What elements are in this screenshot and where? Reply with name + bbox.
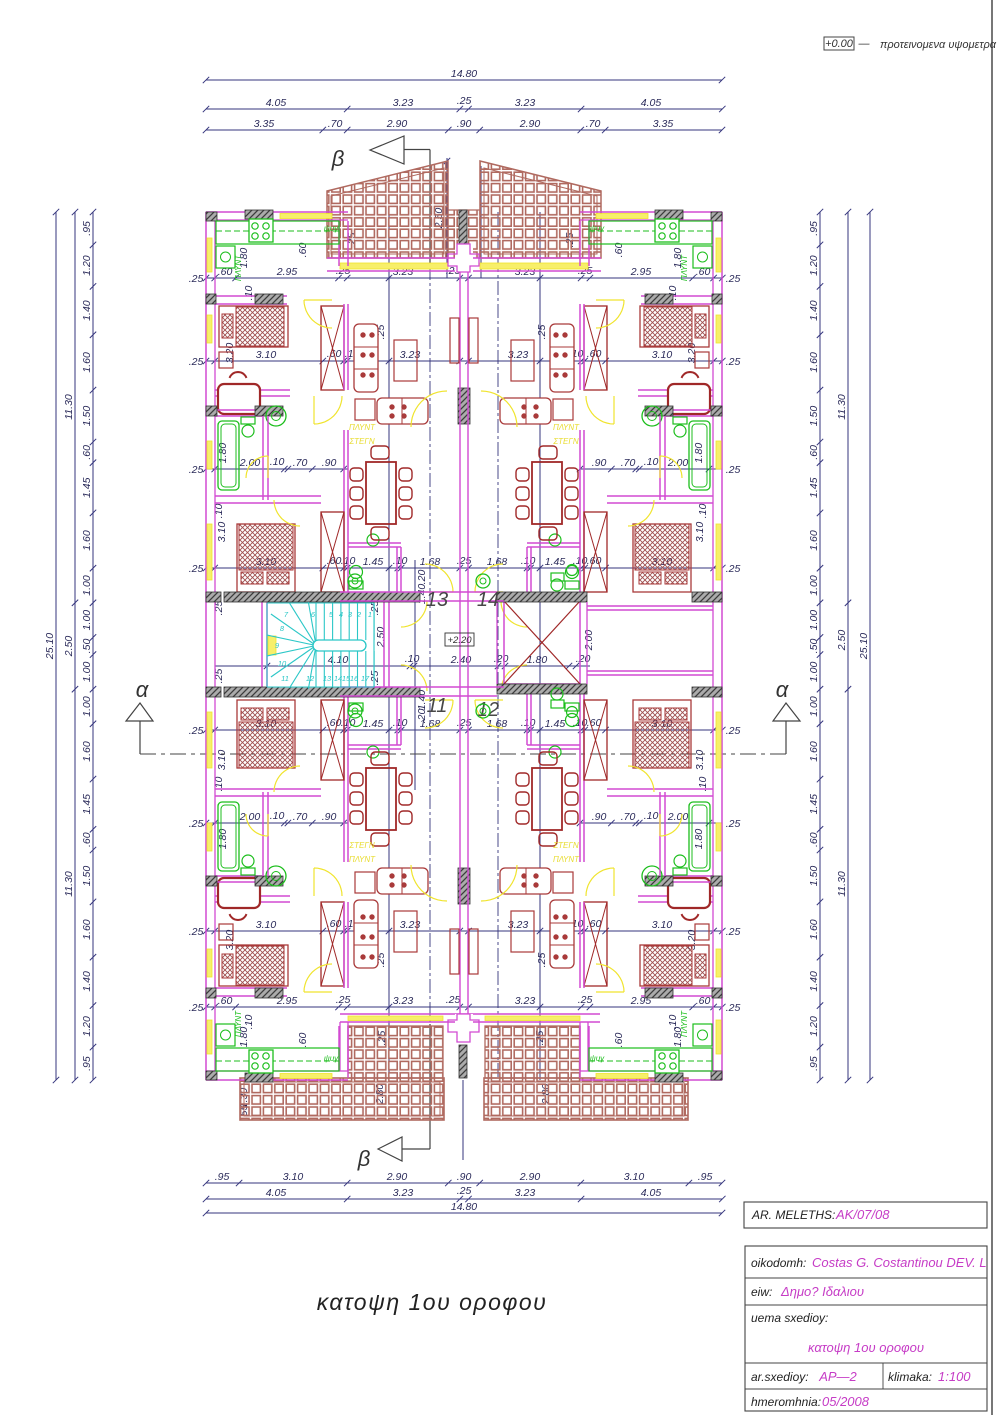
svg-text:2.95: 2.95 xyxy=(276,266,298,278)
svg-text:.60: .60 xyxy=(808,445,820,460)
svg-text:.95: .95 xyxy=(81,1056,93,1071)
svg-text:3.20: 3.20 xyxy=(224,343,236,364)
svg-text:3.23: 3.23 xyxy=(515,1187,536,1199)
svg-text:1.45: 1.45 xyxy=(545,556,566,568)
svg-text:Costas G. Costantinou DEV. L: Costas G. Costantinou DEV. L xyxy=(812,1255,987,1270)
svg-text:2.00: 2.00 xyxy=(239,811,261,823)
svg-text:.60: .60 xyxy=(613,243,625,258)
svg-text:.90: .90 xyxy=(592,457,607,469)
svg-text:1.40: 1.40 xyxy=(81,300,93,321)
svg-text:14: 14 xyxy=(477,589,499,611)
svg-text:ΣΤΕΓΝ: ΣΤΕΓΝ xyxy=(552,841,579,850)
svg-text:.10: .10 xyxy=(644,810,659,822)
svg-text:3.10: 3.10 xyxy=(256,349,277,361)
svg-text:4: 4 xyxy=(339,610,343,619)
svg-text:4.05: 4.05 xyxy=(266,97,287,109)
svg-text:.25: .25 xyxy=(336,994,351,1006)
svg-text:.10: .10 xyxy=(521,717,536,729)
svg-text:2: 2 xyxy=(356,610,362,619)
svg-text:1.60: 1.60 xyxy=(808,530,820,551)
svg-text:+0.00: +0.00 xyxy=(825,38,854,50)
svg-text:α: α xyxy=(776,677,790,702)
svg-text:3.10: 3.10 xyxy=(216,750,228,771)
svg-text:.10: .10 xyxy=(243,1015,255,1030)
svg-text:.60: .60 xyxy=(297,243,309,258)
svg-text:.25: .25 xyxy=(189,464,204,476)
svg-text:1.50: 1.50 xyxy=(808,866,820,887)
svg-text:.25: .25 xyxy=(189,356,204,368)
svg-text:1.00: 1.00 xyxy=(81,575,93,596)
svg-text:1.50: 1.50 xyxy=(81,866,93,887)
svg-text:1.45: 1.45 xyxy=(363,556,384,568)
svg-text:.25: .25 xyxy=(457,1185,472,1197)
svg-text:ΠΛΥΝΤ: ΠΛΥΝΤ xyxy=(553,855,580,864)
svg-text:25.10: 25.10 xyxy=(44,633,56,660)
svg-text:3.10: 3.10 xyxy=(652,919,673,931)
svg-text:11.30: 11.30 xyxy=(63,871,75,897)
svg-text:.25: .25 xyxy=(457,555,472,567)
svg-text:2.90: 2.90 xyxy=(386,118,408,130)
svg-text:1.50: 1.50 xyxy=(81,406,93,427)
svg-text:hmeromhnia:: hmeromhnia: xyxy=(751,1395,821,1409)
svg-text:2.50: 2.50 xyxy=(63,636,75,658)
svg-text:oikodomh:: oikodomh: xyxy=(751,1256,806,1270)
svg-text:11.30: 11.30 xyxy=(836,394,848,420)
svg-text:1.80: 1.80 xyxy=(217,443,229,464)
svg-text:.10: .10 xyxy=(644,456,659,468)
svg-text:.10: .10 xyxy=(393,555,408,567)
svg-text:ΠΛΥΝΤ: ΠΛΥΝΤ xyxy=(349,423,376,432)
svg-text:β: β xyxy=(331,146,345,171)
svg-text:Δημο? Ιδαλιου: Δημο? Ιδαλιου xyxy=(780,1284,864,1299)
svg-text:.25: .25 xyxy=(536,953,548,968)
svg-text:.25: .25 xyxy=(726,563,741,575)
svg-text:.90: .90 xyxy=(322,811,337,823)
svg-text:.60: .60 xyxy=(696,995,711,1007)
svg-text:.25: .25 xyxy=(189,1002,204,1014)
svg-text:2.50: 2.50 xyxy=(375,627,387,649)
svg-text:12: 12 xyxy=(306,674,315,683)
svg-text:1.20: 1.20 xyxy=(808,255,820,276)
svg-text:1.60: 1.60 xyxy=(81,741,93,762)
svg-text:eiw:: eiw: xyxy=(751,1285,772,1299)
svg-text:.95: .95 xyxy=(698,1171,713,1183)
svg-text:1.60: 1.60 xyxy=(808,919,820,940)
svg-text:1.00: 1.00 xyxy=(808,575,820,596)
svg-text:1.60: 1.60 xyxy=(808,741,820,762)
svg-text:1.80: 1.80 xyxy=(217,829,229,850)
svg-text:1.50: 1.50 xyxy=(808,406,820,427)
svg-text:3.23: 3.23 xyxy=(515,97,536,109)
svg-text:.70: .70 xyxy=(621,457,636,469)
svg-text:.25: .25 xyxy=(578,994,593,1006)
svg-text:.10: .10 xyxy=(667,1015,679,1030)
svg-text:.60: .60 xyxy=(613,1033,625,1048)
svg-text:klimaka:: klimaka: xyxy=(888,1370,932,1384)
svg-text:1.40: 1.40 xyxy=(81,971,93,992)
svg-text:προτεινομενα υψομετρα: προτεινομενα υψομετρα xyxy=(880,39,997,51)
svg-text:2.95: 2.95 xyxy=(630,266,652,278)
svg-text:4.10: 4.10 xyxy=(328,654,349,666)
svg-text:3.23: 3.23 xyxy=(515,995,536,1007)
svg-text:.90: .90 xyxy=(322,457,337,469)
svg-text:κατοψη 1ου οροφου: κατοψη 1ου οροφου xyxy=(808,1340,924,1355)
svg-text:ΠΛΥΝΤ: ΠΛΥΝΤ xyxy=(234,254,243,281)
svg-text:.25: .25 xyxy=(726,818,741,830)
svg-text:1.00: 1.00 xyxy=(81,610,93,631)
svg-text:β: β xyxy=(357,1146,371,1171)
svg-text:ψυγ: ψυγ xyxy=(324,224,339,233)
svg-text:3.23: 3.23 xyxy=(393,995,414,1007)
svg-text:.10: .10 xyxy=(393,717,408,729)
svg-text:.70: .70 xyxy=(293,811,308,823)
svg-text:κατοψη 1ου οροφου: κατοψη 1ου οροφου xyxy=(317,1289,548,1315)
svg-text:.70: .70 xyxy=(586,118,601,130)
svg-text:2.90: 2.90 xyxy=(519,1171,541,1183)
svg-text:1.60: 1.60 xyxy=(808,352,820,373)
svg-text:1.80: 1.80 xyxy=(693,829,705,850)
svg-text:1.20: 1.20 xyxy=(81,1016,93,1037)
svg-text:ΠΛΥΝΤ: ΠΛΥΝΤ xyxy=(553,423,580,432)
svg-text:—: — xyxy=(858,38,871,50)
svg-text:2.50: 2.50 xyxy=(836,630,848,652)
svg-text:.70: .70 xyxy=(293,457,308,469)
svg-text:3.10: 3.10 xyxy=(652,349,673,361)
svg-text:1.60: 1.60 xyxy=(81,352,93,373)
svg-text:.95: .95 xyxy=(808,221,820,236)
svg-text:.95: .95 xyxy=(808,1056,820,1071)
svg-text:2.00: 2.00 xyxy=(583,630,595,652)
svg-text:.90: .90 xyxy=(457,1171,472,1183)
svg-text:25.10: 25.10 xyxy=(858,633,870,660)
svg-text:.90: .90 xyxy=(457,118,472,130)
svg-text:.10: .10 xyxy=(405,653,420,665)
svg-text:2.00: 2.00 xyxy=(667,811,689,823)
svg-text:.25: .25 xyxy=(536,325,548,340)
svg-text:1.40: 1.40 xyxy=(808,300,820,321)
svg-text:.25: .25 xyxy=(726,1002,741,1014)
svg-text:ΠΛΥΝΤ: ΠΛΥΝΤ xyxy=(349,855,376,864)
svg-text:3.10: 3.10 xyxy=(694,522,706,543)
svg-text:.60: .60 xyxy=(218,995,233,1007)
svg-text:4.05: 4.05 xyxy=(641,1187,662,1199)
svg-text:4.05: 4.05 xyxy=(641,97,662,109)
svg-text:3.35: 3.35 xyxy=(254,118,275,130)
svg-text:14.80: 14.80 xyxy=(451,68,477,80)
svg-text:.70: .70 xyxy=(621,811,636,823)
svg-text:3.23: 3.23 xyxy=(393,97,414,109)
svg-text:05/2008: 05/2008 xyxy=(822,1394,870,1409)
svg-text:1.00: 1.00 xyxy=(81,696,93,717)
svg-text:AP—2: AP—2 xyxy=(818,1369,857,1384)
svg-text:11: 11 xyxy=(281,674,289,683)
svg-text:.95: .95 xyxy=(81,221,93,236)
svg-text:.10: .10 xyxy=(521,555,536,567)
svg-text:1.80: 1.80 xyxy=(693,443,705,464)
svg-text:.25: .25 xyxy=(726,725,741,737)
svg-text:1.20: 1.20 xyxy=(81,255,93,276)
svg-text:3.10: 3.10 xyxy=(624,1171,645,1183)
svg-text:.25: .25 xyxy=(189,273,204,285)
svg-text:1.45: 1.45 xyxy=(81,477,93,498)
svg-text:1.45: 1.45 xyxy=(808,477,820,498)
svg-text:4.05: 4.05 xyxy=(266,1187,287,1199)
svg-text:1.00: 1.00 xyxy=(81,662,93,683)
svg-text:.25: .25 xyxy=(189,926,204,938)
svg-text:.20: .20 xyxy=(576,653,591,665)
svg-text:1.40: 1.40 xyxy=(808,971,820,992)
svg-text:AK/07/08: AK/07/08 xyxy=(835,1207,890,1222)
svg-text:1.20: 1.20 xyxy=(808,1016,820,1037)
svg-text:1.68: 1.68 xyxy=(487,556,508,568)
svg-text:.25: .25 xyxy=(726,464,741,476)
svg-text:+2.20: +2.20 xyxy=(447,635,472,646)
svg-text:.25: .25 xyxy=(189,725,204,737)
svg-text:13: 13 xyxy=(426,589,448,611)
svg-text:.25: .25 xyxy=(369,671,381,686)
svg-text:1.00: 1.00 xyxy=(808,610,820,631)
svg-text:.25: .25 xyxy=(726,926,741,938)
svg-text:.20: .20 xyxy=(494,653,509,665)
svg-text:1.45: 1.45 xyxy=(545,718,566,730)
svg-text:.50: .50 xyxy=(81,639,93,654)
svg-text:1.45: 1.45 xyxy=(363,718,384,730)
svg-text:ΣΤΕΓΝ: ΣΤΕΓΝ xyxy=(348,437,375,446)
svg-text:ΠΛΥΝΤ: ΠΛΥΝΤ xyxy=(680,254,689,281)
svg-text:1.60: 1.60 xyxy=(81,919,93,940)
svg-text:.25: .25 xyxy=(457,95,472,107)
svg-text:11.30: 11.30 xyxy=(836,871,848,897)
svg-text:1.00: 1.00 xyxy=(808,662,820,683)
svg-text:uema sxedioy:: uema sxedioy: xyxy=(751,1311,828,1325)
svg-text:.20: .20 xyxy=(416,570,428,585)
svg-text:16: 16 xyxy=(350,674,359,683)
svg-text:1.45: 1.45 xyxy=(81,794,93,815)
svg-text:.25: .25 xyxy=(446,994,461,1006)
svg-text:.10: .10 xyxy=(697,504,709,519)
svg-text:AR. MELETHS:: AR. MELETHS: xyxy=(751,1208,835,1222)
svg-text:1.00: 1.00 xyxy=(808,696,820,717)
svg-text:α: α xyxy=(136,677,150,702)
svg-text:.90: .90 xyxy=(592,811,607,823)
svg-text:.25: .25 xyxy=(189,563,204,575)
svg-text:3.35: 3.35 xyxy=(653,118,674,130)
svg-text:13: 13 xyxy=(323,674,332,683)
svg-text:.25: .25 xyxy=(189,818,204,830)
svg-text:.60: .60 xyxy=(297,1033,309,1048)
svg-text:11.30: 11.30 xyxy=(63,394,75,420)
svg-text:1:100: 1:100 xyxy=(938,1369,971,1384)
svg-text:3.10: 3.10 xyxy=(694,750,706,771)
svg-text:ΠΛΥΝΤ: ΠΛΥΝΤ xyxy=(234,1010,243,1037)
svg-text:14.80: 14.80 xyxy=(451,1201,477,1213)
svg-text:.25: .25 xyxy=(726,356,741,368)
svg-text:ΣΤΕΓΝ: ΣΤΕΓΝ xyxy=(552,437,579,446)
svg-text:.50: .50 xyxy=(808,639,820,654)
svg-text:2.90: 2.90 xyxy=(386,1171,408,1183)
svg-text:3.10: 3.10 xyxy=(216,522,228,543)
svg-text:.25: .25 xyxy=(457,717,472,729)
svg-text:ψυγ: ψυγ xyxy=(324,1054,339,1063)
svg-text:ψυγ: ψυγ xyxy=(590,224,605,233)
svg-text:17: 17 xyxy=(361,674,370,683)
svg-text:3.23: 3.23 xyxy=(393,1187,414,1199)
svg-text:3.10: 3.10 xyxy=(283,1171,304,1183)
svg-text:1.60: 1.60 xyxy=(81,530,93,551)
svg-text:.60: .60 xyxy=(81,445,93,460)
svg-text:.25: .25 xyxy=(726,273,741,285)
svg-text:10: 10 xyxy=(278,659,287,668)
svg-text:3.10: 3.10 xyxy=(256,919,277,931)
svg-text:.60: .60 xyxy=(81,832,93,847)
svg-text:1: 1 xyxy=(368,610,372,619)
svg-text:11: 11 xyxy=(427,695,448,717)
svg-text:1.45: 1.45 xyxy=(808,794,820,815)
svg-text:.60: .60 xyxy=(808,832,820,847)
svg-text:ΠΛΥΝΤ: ΠΛΥΝΤ xyxy=(680,1010,689,1037)
svg-text:.10: .10 xyxy=(243,286,255,301)
svg-text:ar.sxedioy:: ar.sxedioy: xyxy=(751,1370,809,1384)
svg-text:2.90: 2.90 xyxy=(519,118,541,130)
svg-text:ΣΤΕΓΝ: ΣΤΕΓΝ xyxy=(348,841,375,850)
svg-text:.70: .70 xyxy=(328,118,343,130)
svg-text:ψυγ: ψυγ xyxy=(590,1054,605,1063)
svg-text:.10: .10 xyxy=(270,456,285,468)
svg-text:.10: .10 xyxy=(270,810,285,822)
svg-text:.95: .95 xyxy=(215,1171,230,1183)
